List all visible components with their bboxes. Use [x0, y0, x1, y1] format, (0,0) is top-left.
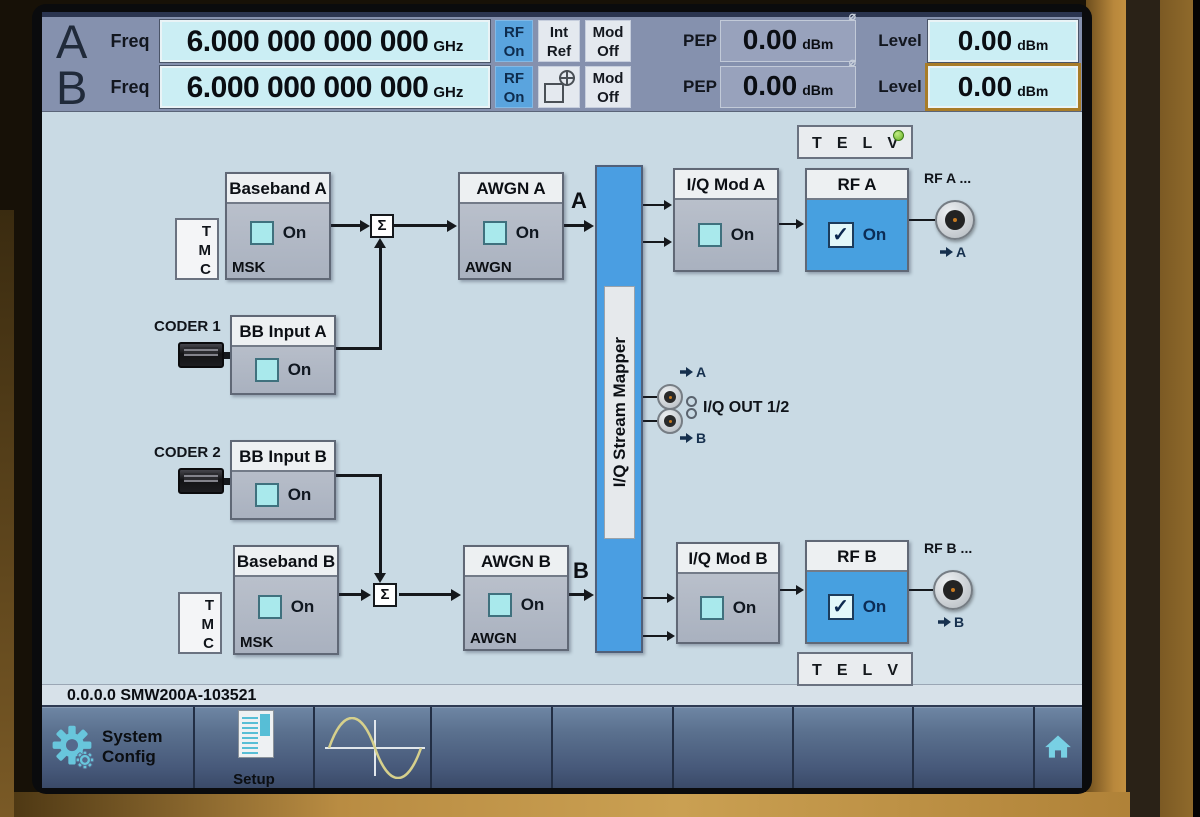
bb-input-a-block[interactable]: BB Input A On — [230, 315, 336, 395]
graphics-button[interactable] — [315, 707, 432, 788]
level-a-unit: dBm — [1017, 37, 1048, 53]
awgn-b-sublabel: AWGN — [470, 630, 517, 647]
sum-node-a: Σ — [370, 214, 394, 238]
taskbar-slot-3[interactable] — [674, 707, 794, 788]
baseband-b-sublabel: MSK — [240, 634, 273, 651]
bb-input-a-title: BB Input A — [232, 317, 334, 347]
baseband-a-on-label: On — [283, 223, 307, 243]
connector-line-thin — [643, 420, 657, 422]
iq-mod-b-checkbox[interactable] — [700, 596, 724, 620]
iq-out-small-circle-icon — [686, 408, 697, 419]
awgn-a-on-label: On — [516, 223, 540, 243]
awgn-a-body: On AWGN — [460, 204, 562, 278]
iq-out-small-circle-icon — [686, 396, 697, 407]
gear-icon — [48, 721, 96, 773]
arrowhead — [584, 589, 594, 601]
connector-line — [564, 224, 585, 227]
level-b-field[interactable]: 0.00 dBm — [928, 66, 1078, 108]
taskbar-slot-4[interactable] — [794, 707, 914, 788]
rf-a-state-button[interactable]: RF On — [495, 20, 533, 62]
iq-mod-b-title: I/Q Mod B — [678, 544, 778, 574]
iq-mod-a-block[interactable]: I/Q Mod A On — [673, 168, 779, 272]
awgn-a-title: AWGN A — [460, 174, 562, 204]
iq-stream-mapper-label: I/Q Stream Mapper — [610, 337, 630, 487]
rf-a-on-label: On — [863, 225, 887, 245]
pep-a-label: PEP — [680, 20, 720, 62]
offset-indicator-icon: ⌀ — [849, 12, 856, 23]
iq-mod-a-on-label: On — [731, 225, 755, 245]
frame-right-edge — [1193, 0, 1200, 817]
rf-b-block[interactable]: RF B ✓ On — [805, 540, 909, 644]
iq-stream-mapper-strip: I/Q Stream Mapper — [604, 286, 635, 539]
connector-line-thin — [643, 635, 669, 637]
iq-out-a-label: A — [680, 364, 706, 380]
connector-line-thin — [643, 597, 669, 599]
arrowhead — [664, 237, 672, 247]
iq-mod-b-on-label: On — [733, 598, 757, 618]
bb-input-b-body: On — [232, 472, 334, 518]
offset-indicator-icon: ⌀ — [849, 55, 856, 69]
awgn-a-sublabel: AWGN — [465, 259, 512, 276]
iq-out-label: I/Q OUT 1/2 — [703, 399, 789, 417]
rf-b-state-button[interactable]: RF On — [495, 66, 533, 108]
tmc-block-a[interactable]: T M C — [175, 218, 219, 280]
connector-line — [331, 224, 362, 227]
bb-input-b-title: BB Input B — [232, 442, 334, 472]
level-a-value: 0.00 — [958, 25, 1013, 57]
touchscreen: A Freq 6.000 000 000 000 GHz RF On Int R… — [42, 12, 1082, 788]
iq-out-b-label: B — [680, 430, 706, 446]
freq-b-unit: GHz — [433, 84, 463, 101]
coder2-connector-icon — [178, 468, 224, 494]
iq-mod-b-block[interactable]: I/Q Mod B On — [676, 542, 780, 644]
constellation-icon[interactable] — [538, 66, 580, 108]
level-b-label: Level — [874, 66, 926, 108]
connector-line — [336, 347, 382, 350]
bb-input-a-body: On — [232, 347, 334, 393]
arrow-right-icon — [680, 433, 693, 443]
coder1-pins — [184, 347, 218, 356]
rf-a-block[interactable]: RF A ✓ On — [805, 168, 909, 272]
awgn-b-on-label: On — [521, 595, 545, 615]
freq-b-value: 6.000 000 000 000 — [187, 71, 429, 105]
system-config-button[interactable]: System Config — [42, 707, 195, 788]
arrowhead — [664, 200, 672, 210]
baseband-a-title: Baseband A — [227, 174, 329, 204]
bb-input-b-checkbox[interactable] — [255, 483, 279, 507]
arrow-right-icon — [680, 367, 693, 377]
level-a-label: Level — [874, 20, 926, 62]
home-icon — [1044, 733, 1072, 759]
taskbar-slot-1[interactable] — [432, 707, 553, 788]
mod-a-state-button[interactable]: Mod Off — [585, 20, 631, 62]
tmc-block-b[interactable]: T M C — [178, 592, 222, 654]
led-icon — [893, 130, 904, 141]
iq-out-1-connector-icon — [657, 384, 683, 410]
stream-b-letter: B — [573, 558, 589, 584]
coder2-label: CODER 2 — [154, 444, 221, 461]
connector-line-thin — [643, 204, 666, 206]
rf-b-checkbox[interactable]: ✓ — [828, 594, 854, 620]
status-bar: 0.0.0.0 SMW200A-103521 — [42, 684, 1082, 705]
coder1-connector-icon — [178, 342, 224, 368]
rf-a-connector-pin — [953, 218, 957, 222]
coder1-label: CODER 1 — [154, 318, 221, 335]
arrow-right-icon — [940, 247, 953, 257]
connector-line — [379, 247, 382, 350]
connector-line-thin — [643, 396, 657, 398]
awgn-b-title: AWGN B — [465, 547, 567, 577]
rf-b-connector-icon — [933, 570, 973, 610]
system-config-label: System Config — [102, 727, 162, 767]
telv-indicator-a[interactable]: T E L V — [797, 125, 913, 159]
rf-b-title: RF B — [807, 542, 907, 572]
channel-a-letter: A — [56, 18, 87, 66]
bb-input-b-block[interactable]: BB Input B On — [230, 440, 336, 520]
arrowhead — [667, 593, 675, 603]
frame-left-band — [0, 210, 14, 817]
freq-a-field[interactable]: 6.000 000 000 000 GHz — [160, 20, 490, 62]
setup-window-icon — [238, 710, 274, 758]
freq-a-label: Freq — [104, 20, 156, 62]
arrowhead — [447, 220, 457, 232]
constellation-square — [544, 83, 564, 103]
bb-input-a-on-label: On — [288, 360, 312, 380]
arrowhead — [360, 220, 370, 232]
rf-b-connector-pin — [951, 588, 955, 592]
frame-right-dark-band — [1126, 0, 1160, 817]
connector-line — [336, 474, 382, 477]
arrowhead — [361, 589, 371, 601]
coder2-pins — [184, 473, 218, 482]
freq-b-field[interactable]: 6.000 000 000 000 GHz — [160, 66, 490, 108]
header-top-strip — [42, 12, 1082, 17]
arrowhead — [374, 573, 386, 583]
baseband-a-body: On MSK — [227, 204, 329, 278]
level-a-field[interactable]: 0.00 dBm — [928, 20, 1078, 62]
arrowhead — [796, 219, 804, 229]
freq-a-value: 6.000 000 000 000 — [187, 25, 429, 59]
connector-line — [339, 593, 363, 596]
header-bar: A Freq 6.000 000 000 000 GHz RF On Int R… — [42, 12, 1082, 112]
arrowhead — [667, 631, 675, 641]
int-ref-button[interactable]: Int Ref — [538, 20, 580, 62]
baseband-a-sublabel: MSK — [232, 259, 265, 276]
home-button[interactable] — [1035, 707, 1082, 788]
stream-a-letter: A — [571, 188, 587, 214]
taskbar-slot-2[interactable] — [553, 707, 674, 788]
setup-label: Setup — [195, 771, 313, 788]
rf-a-title: RF A — [807, 170, 907, 200]
frame-bottom-band — [0, 792, 1130, 817]
baseband-b-title: Baseband B — [235, 547, 337, 577]
pep-b-unit: dBm — [802, 82, 833, 98]
baseband-b-block[interactable]: Baseband B On MSK — [233, 545, 339, 655]
pep-b-field[interactable]: 0.00 dBm ⌀ — [720, 66, 856, 108]
sum-node-b: Σ — [373, 583, 397, 607]
level-b-value: 0.00 — [958, 71, 1013, 103]
pep-a-field[interactable]: 0.00 dBm ⌀ — [720, 20, 856, 62]
pep-a-value: 0.00 — [743, 24, 798, 56]
freq-b-label: Freq — [104, 66, 156, 108]
awgn-b-body: On AWGN — [465, 577, 567, 649]
arrowhead — [584, 220, 594, 232]
connector-line — [394, 224, 449, 227]
rf-b-on-label: On — [863, 597, 887, 617]
level-b-unit: dBm — [1017, 83, 1048, 99]
baseband-a-block[interactable]: Baseband A On MSK — [225, 172, 331, 280]
status-text: 0.0.0.0 SMW200A-103521 — [67, 687, 256, 704]
constellation-crosshair — [559, 70, 575, 86]
iq-stream-mapper-block[interactable]: I/Q Stream Mapper — [595, 165, 643, 653]
awgn-b-block[interactable]: AWGN B On AWGN — [463, 545, 569, 651]
connector-line — [399, 593, 453, 596]
connector-line-thin — [643, 241, 666, 243]
awgn-b-checkbox[interactable] — [488, 593, 512, 617]
rf-b-output-label: B — [938, 614, 964, 630]
rf-b-body: ✓ On — [807, 572, 907, 642]
rf-a-checkbox[interactable]: ✓ — [828, 222, 854, 248]
connector-line-thin — [909, 589, 933, 591]
connector-line — [379, 474, 382, 574]
taskbar: System Config Setup — [42, 705, 1082, 788]
arrow-right-icon — [938, 617, 951, 627]
pep-b-value: 0.00 — [743, 70, 798, 102]
rf-b-connector-label: RF B ... — [924, 540, 972, 556]
taskbar-slot-5[interactable] — [914, 707, 1035, 788]
baseband-b-body: On MSK — [235, 577, 337, 653]
rf-a-body: ✓ On — [807, 200, 907, 270]
rf-a-connector-label: RF A ... — [924, 170, 971, 186]
rf-a-output-label: A — [940, 244, 966, 260]
arrowhead — [796, 585, 804, 595]
baseband-b-checkbox[interactable] — [258, 595, 282, 619]
rf-a-connector-icon — [935, 200, 975, 240]
frame-right-band-2 — [1160, 0, 1193, 817]
sine-wave-icon — [325, 717, 425, 779]
frame-right-band — [1086, 0, 1126, 817]
bb-input-a-checkbox[interactable] — [255, 358, 279, 382]
iq-mod-a-checkbox[interactable] — [698, 223, 722, 247]
telv-indicator-b[interactable]: T E L V — [797, 652, 913, 686]
connector-line-thin — [909, 219, 935, 221]
iq-mod-a-title: I/Q Mod A — [675, 170, 777, 200]
pep-a-unit: dBm — [802, 36, 833, 52]
bb-input-b-on-label: On — [288, 485, 312, 505]
baseband-a-checkbox[interactable] — [250, 221, 274, 245]
arrowhead — [374, 238, 386, 248]
freq-a-unit: GHz — [433, 38, 463, 55]
awgn-a-checkbox[interactable] — [483, 221, 507, 245]
iq-mod-b-body: On — [678, 574, 778, 642]
mod-b-state-button[interactable]: Mod Off — [585, 66, 631, 108]
awgn-a-block[interactable]: AWGN A On AWGN — [458, 172, 564, 280]
iq-mod-a-body: On — [675, 200, 777, 270]
arrowhead — [451, 589, 461, 601]
baseband-b-on-label: On — [291, 597, 315, 617]
channel-b-letter: B — [56, 64, 87, 112]
instrument-front-panel: A Freq 6.000 000 000 000 GHz RF On Int R… — [0, 0, 1200, 817]
setup-button[interactable]: Setup — [195, 707, 315, 788]
pep-b-label: PEP — [680, 66, 720, 108]
